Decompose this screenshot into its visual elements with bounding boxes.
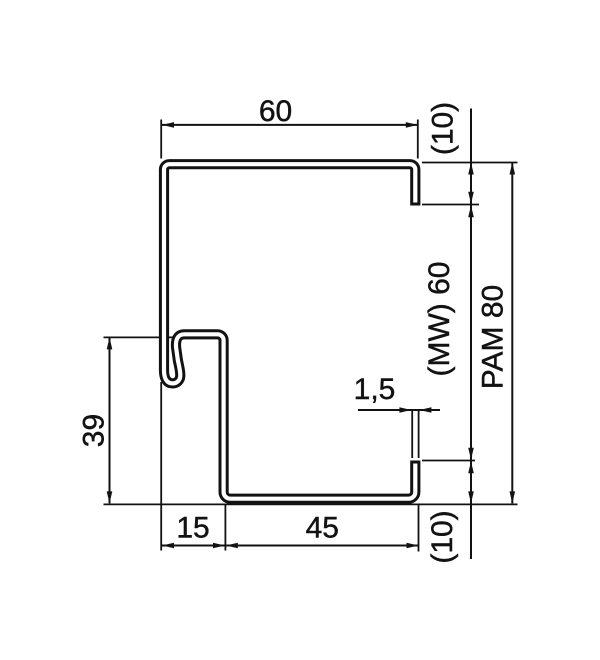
svg-text:PAM 80: PAM 80: [477, 285, 510, 390]
svg-text:60: 60: [259, 95, 292, 128]
svg-text:45: 45: [306, 512, 339, 545]
svg-text:(10): (10): [427, 102, 460, 155]
svg-text:(MW) 60: (MW) 60: [423, 262, 456, 377]
svg-text:1,5: 1,5: [354, 373, 396, 406]
svg-text:39: 39: [78, 414, 111, 447]
svg-text:(10): (10): [426, 510, 459, 563]
svg-text:15: 15: [176, 512, 209, 545]
